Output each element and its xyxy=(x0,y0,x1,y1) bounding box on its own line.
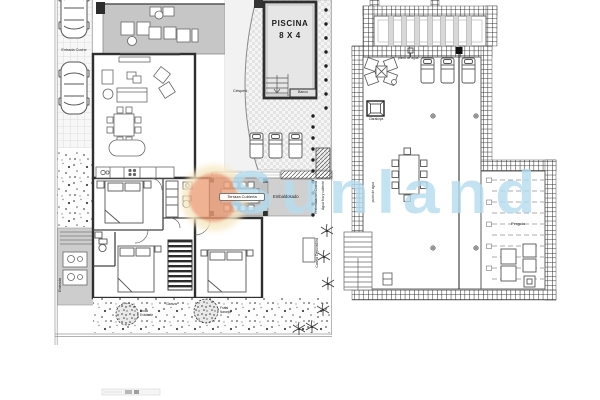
sun-lounger-icon xyxy=(250,133,263,158)
drain-icon xyxy=(431,114,435,118)
sun-lounger-icon xyxy=(462,58,475,83)
pergola-area xyxy=(487,178,545,287)
tree-icon xyxy=(194,299,218,323)
car-icon xyxy=(59,62,89,114)
entrance-label: Entrada xyxy=(58,252,63,292)
right-solarium-plan xyxy=(344,0,556,300)
pool-name: PISCINA xyxy=(272,19,309,28)
car-icon xyxy=(59,0,89,38)
dining-table xyxy=(114,114,134,136)
external-stairs xyxy=(344,232,372,290)
tree-icon xyxy=(116,303,138,325)
drain-icon xyxy=(431,246,435,250)
water-point-label: punto de agua xyxy=(398,57,418,61)
tree2-label: Frutal Naranjo xyxy=(220,307,236,314)
sofa xyxy=(117,88,147,102)
sun-lounger-icon xyxy=(269,133,282,158)
front-porch xyxy=(96,2,225,54)
skylight xyxy=(367,101,384,116)
left-floorplan xyxy=(55,0,334,345)
bed-icon xyxy=(97,181,151,223)
driveway-label: Entrada Coche xyxy=(54,48,94,52)
site-plan-svg xyxy=(0,0,600,400)
sun-lounger-icon xyxy=(421,58,434,83)
driveway xyxy=(58,0,93,148)
beam-ends xyxy=(487,178,492,271)
hot-cold-water-label: Agua fría y caliente xyxy=(322,181,326,210)
covered-terrace-label: Terraza Cubierta xyxy=(219,193,265,201)
water-point2-label: punto de agua xyxy=(372,182,376,202)
division-line xyxy=(456,47,463,289)
floorplan-canvas: Sunland Entrada Coche PISCINA 8 X 4 Banc… xyxy=(0,0,600,400)
pool-equipment-shed xyxy=(303,238,315,262)
skylight-label: Claraboya xyxy=(362,118,390,122)
outdoor-shower xyxy=(316,148,330,178)
inner-wall-face xyxy=(363,57,545,289)
pool-title: PISCINA 8 X 4 xyxy=(262,18,318,42)
wardrobe xyxy=(166,181,178,217)
armchair xyxy=(102,70,113,84)
kitchen-counter xyxy=(96,167,174,178)
gravel-label: Grava xyxy=(166,302,177,307)
wall-box xyxy=(383,273,392,285)
pool xyxy=(254,0,316,98)
drain-icon xyxy=(474,114,478,118)
deck-sun-loungers xyxy=(250,133,302,158)
pool-size: 8 X 4 xyxy=(279,31,301,40)
drain-icon xyxy=(474,246,478,250)
stairs xyxy=(168,240,192,290)
side-table xyxy=(103,89,113,99)
bed-icon xyxy=(201,250,253,292)
pergola-label: Pergola xyxy=(498,222,538,227)
sun-lounger-icon xyxy=(289,133,302,158)
tree1-label: Frutal Existente xyxy=(140,310,156,317)
sink xyxy=(101,170,105,174)
pool-equipment-label: Caseta Depuradora xyxy=(316,238,320,268)
lounge-set xyxy=(501,244,536,287)
jacuzzi-lounge xyxy=(364,57,397,85)
pergola-slats xyxy=(374,16,486,46)
lawn-label: Césped xyxy=(233,89,247,94)
paved-terrace-label: Embaldosado xyxy=(273,195,299,200)
gravel-strip xyxy=(58,150,93,227)
tv-sideboard xyxy=(119,57,150,62)
pool-bench-label: Banco xyxy=(291,90,315,94)
kitchen-island xyxy=(109,140,145,156)
sun-lounger-icon xyxy=(441,58,454,83)
roof-dining-set xyxy=(392,148,427,202)
partial-drawing-fragment xyxy=(102,389,160,395)
hob xyxy=(129,169,131,171)
porch-pillar xyxy=(96,2,105,14)
preinstall-label: Preinstalación Cocina xyxy=(315,181,319,214)
